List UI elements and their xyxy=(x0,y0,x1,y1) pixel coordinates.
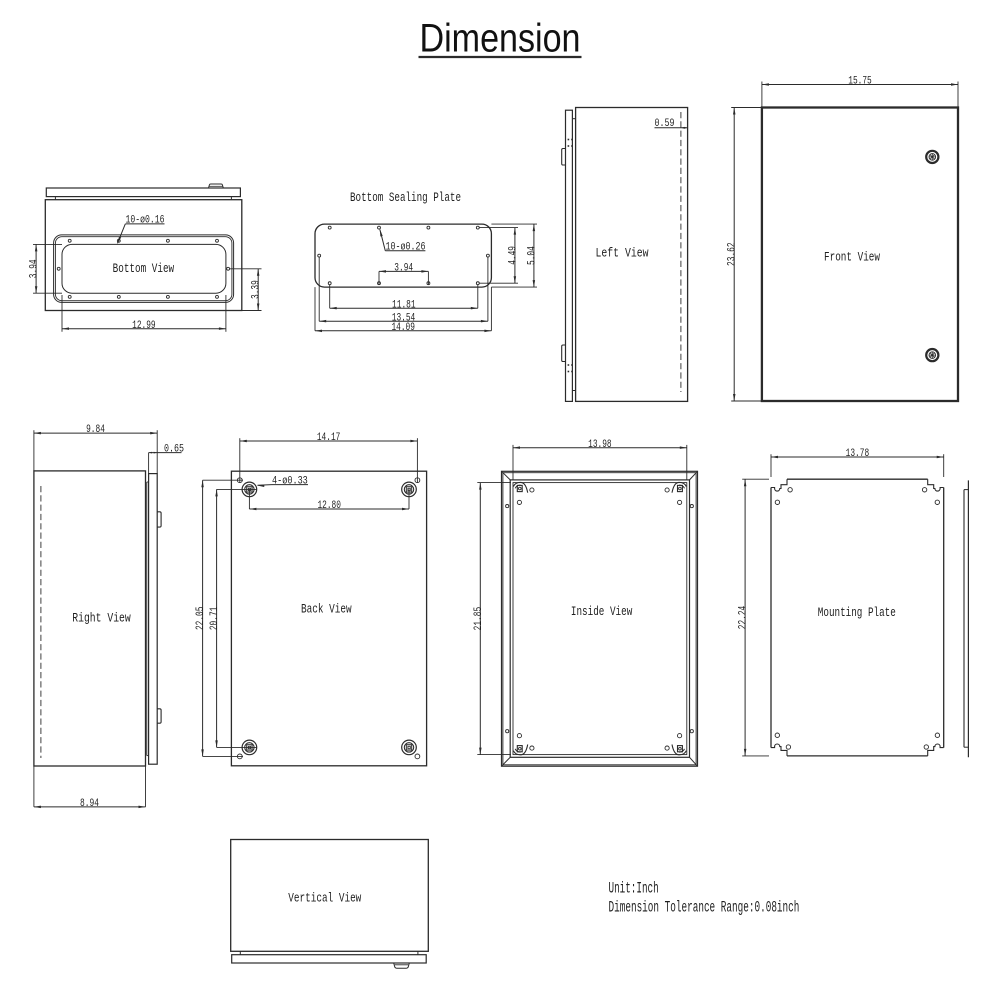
svg-text:22.05: 22.05 xyxy=(195,607,207,631)
svg-text:13.98: 13.98 xyxy=(588,439,612,451)
svg-text:10-ø0.26: 10-ø0.26 xyxy=(386,241,426,253)
svg-text:Dimension Tolerance Range:0.08: Dimension Tolerance Range:0.08inch xyxy=(609,899,800,917)
svg-text:Bottom View: Bottom View xyxy=(113,261,175,276)
svg-text:20.71: 20.71 xyxy=(209,606,221,630)
svg-text:4-ø0.33: 4-ø0.33 xyxy=(272,475,308,487)
svg-text:Dimension: Dimension xyxy=(420,17,581,61)
svg-text:3.94: 3.94 xyxy=(29,259,41,278)
svg-text:10-ø0.16: 10-ø0.16 xyxy=(126,214,165,226)
svg-text:0.65: 0.65 xyxy=(164,443,184,455)
svg-text:5.04: 5.04 xyxy=(526,246,538,265)
svg-text:9.84: 9.84 xyxy=(86,424,105,436)
svg-text:3.94: 3.94 xyxy=(394,263,413,275)
svg-text:14.17: 14.17 xyxy=(317,432,341,444)
svg-text:Vertical View: Vertical View xyxy=(288,891,361,906)
svg-text:12.99: 12.99 xyxy=(132,320,156,332)
svg-text:11.81: 11.81 xyxy=(392,299,416,311)
svg-text:0.59: 0.59 xyxy=(655,118,675,130)
svg-text:Right View: Right View xyxy=(72,611,131,626)
svg-text:8.94: 8.94 xyxy=(80,798,99,810)
svg-text:4.49: 4.49 xyxy=(507,246,519,265)
svg-text:12.80: 12.80 xyxy=(317,500,341,512)
svg-text:Front View: Front View xyxy=(824,249,880,264)
svg-text:Mounting Plate: Mounting Plate xyxy=(818,605,896,620)
svg-text:Left View: Left View xyxy=(596,246,649,261)
svg-text:15.75: 15.75 xyxy=(848,76,872,88)
svg-text:3.39: 3.39 xyxy=(251,280,263,299)
svg-text:22.24: 22.24 xyxy=(738,605,750,629)
svg-text:13.78: 13.78 xyxy=(846,448,870,460)
svg-text:23.62: 23.62 xyxy=(727,242,739,266)
svg-text:21.85: 21.85 xyxy=(473,607,485,631)
svg-text:Unit:Inch: Unit:Inch xyxy=(609,880,659,898)
svg-text:14.09: 14.09 xyxy=(391,322,415,334)
svg-text:Back View: Back View xyxy=(301,601,352,616)
svg-text:Inside View: Inside View xyxy=(571,604,633,619)
svg-text:Bottom Sealing Plate: Bottom Sealing Plate xyxy=(350,190,461,205)
